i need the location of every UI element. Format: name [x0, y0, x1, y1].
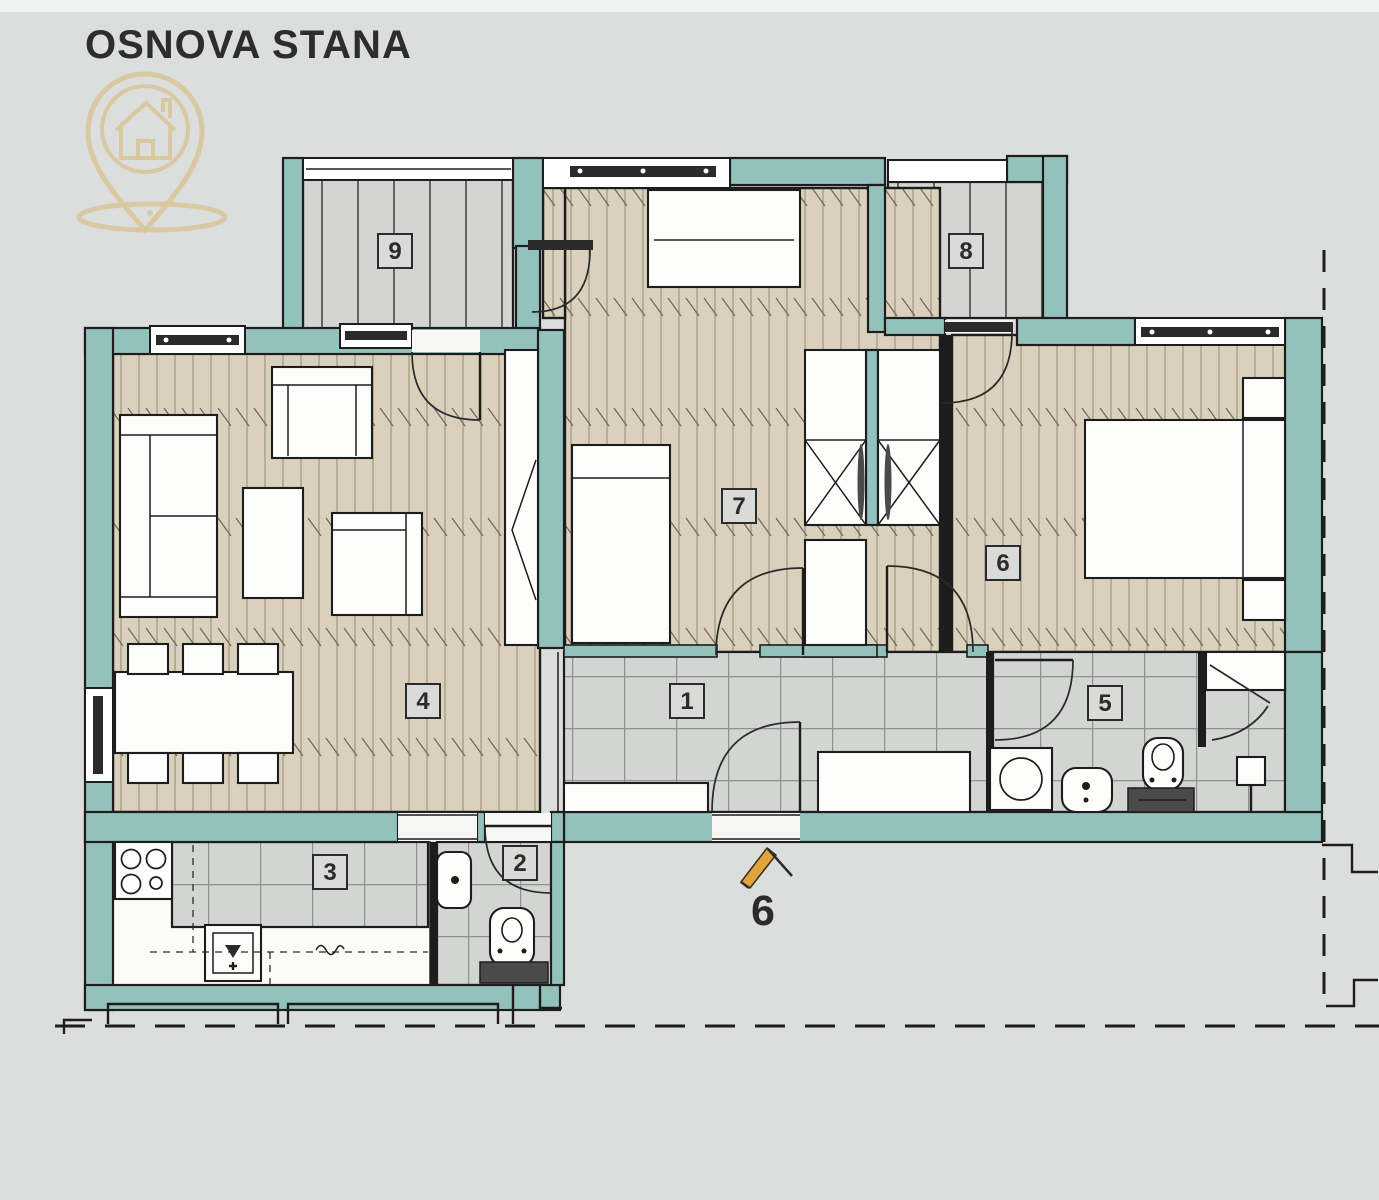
kitchen-opening: [398, 813, 477, 841]
bidet: [1062, 768, 1112, 812]
side-chair: [332, 513, 422, 615]
wc-vanity: [480, 962, 548, 983]
room-7-wardrobe: [648, 190, 800, 287]
room-label-7: 7: [722, 489, 756, 523]
room-7-floor-sliver: [543, 188, 565, 318]
room-label-8: 8: [949, 234, 983, 268]
entrance-marker: 6: [741, 848, 792, 935]
toilet: [1143, 738, 1183, 790]
sliding-door-handle: [858, 444, 865, 520]
page-top-strip: [0, 0, 1379, 12]
room-label-4: 4: [406, 684, 440, 718]
closet-cell-a: [805, 350, 866, 525]
dining-chair: [238, 753, 278, 783]
svg-text:8: 8: [959, 238, 972, 265]
closet-cabinet: [805, 540, 866, 645]
nightstand: [1243, 378, 1285, 418]
nightstand: [1243, 580, 1285, 620]
svg-text:9: 9: [388, 238, 401, 265]
shower-fixture: [1237, 757, 1265, 785]
dining-table: [115, 672, 293, 753]
room-label-3: 3: [313, 855, 347, 889]
balcony9-door-sill: [528, 240, 593, 250]
bathroom-shelf: [1206, 652, 1285, 690]
hall-wardrobe: [818, 752, 970, 812]
svg-text:6: 6: [996, 550, 1009, 577]
dining-chair: [183, 644, 223, 674]
svg-text:7: 7: [732, 493, 745, 520]
balcony8-door-sill: [945, 322, 1013, 332]
entrance-arrow-icon: [741, 848, 776, 888]
svg-text:2: 2: [513, 850, 526, 877]
room-label-9: 9: [378, 234, 412, 268]
dining-chair: [183, 753, 223, 783]
floor-plan-drawing: 1 2 3 4 5 6 7 8 9 6 OSNOVA STANA: [0, 0, 1379, 1200]
svg-text:3: 3: [323, 859, 336, 886]
hall-cabinet: [564, 783, 708, 812]
room-label-6: 6: [986, 546, 1020, 580]
living-balcony-door-opening: [412, 330, 480, 352]
dining-chair: [128, 753, 168, 783]
coffee-table: [243, 488, 303, 598]
kitchen-3-tile-band: [172, 842, 428, 927]
dining-chair: [238, 644, 278, 674]
room-label-1: 1: [670, 684, 704, 718]
room-label-5: 5: [1088, 686, 1122, 720]
armchair: [272, 367, 372, 458]
dining-chair: [128, 644, 168, 674]
svg-text:4: 4: [416, 688, 430, 715]
svg-text:1: 1: [680, 688, 693, 715]
room-6-bed: [1085, 420, 1285, 578]
entry-opening: [712, 813, 800, 841]
wc-toilet: [490, 908, 534, 966]
room-label-2: 2: [503, 846, 537, 880]
entrance-number: 6: [751, 887, 775, 935]
page-title: OSNOVA STANA: [85, 23, 412, 67]
floor-plan-page: 1 2 3 4 5 6 7 8 9 6 OSNOVA STANA: [0, 0, 1379, 1200]
house-location-pin-icon: [79, 74, 225, 230]
living-wardrobe: [505, 350, 538, 645]
svg-text:5: 5: [1098, 690, 1111, 717]
sliding-door-handle: [885, 444, 892, 520]
balcony-8-railing: [888, 160, 1007, 182]
room-7-bed: [572, 445, 670, 643]
